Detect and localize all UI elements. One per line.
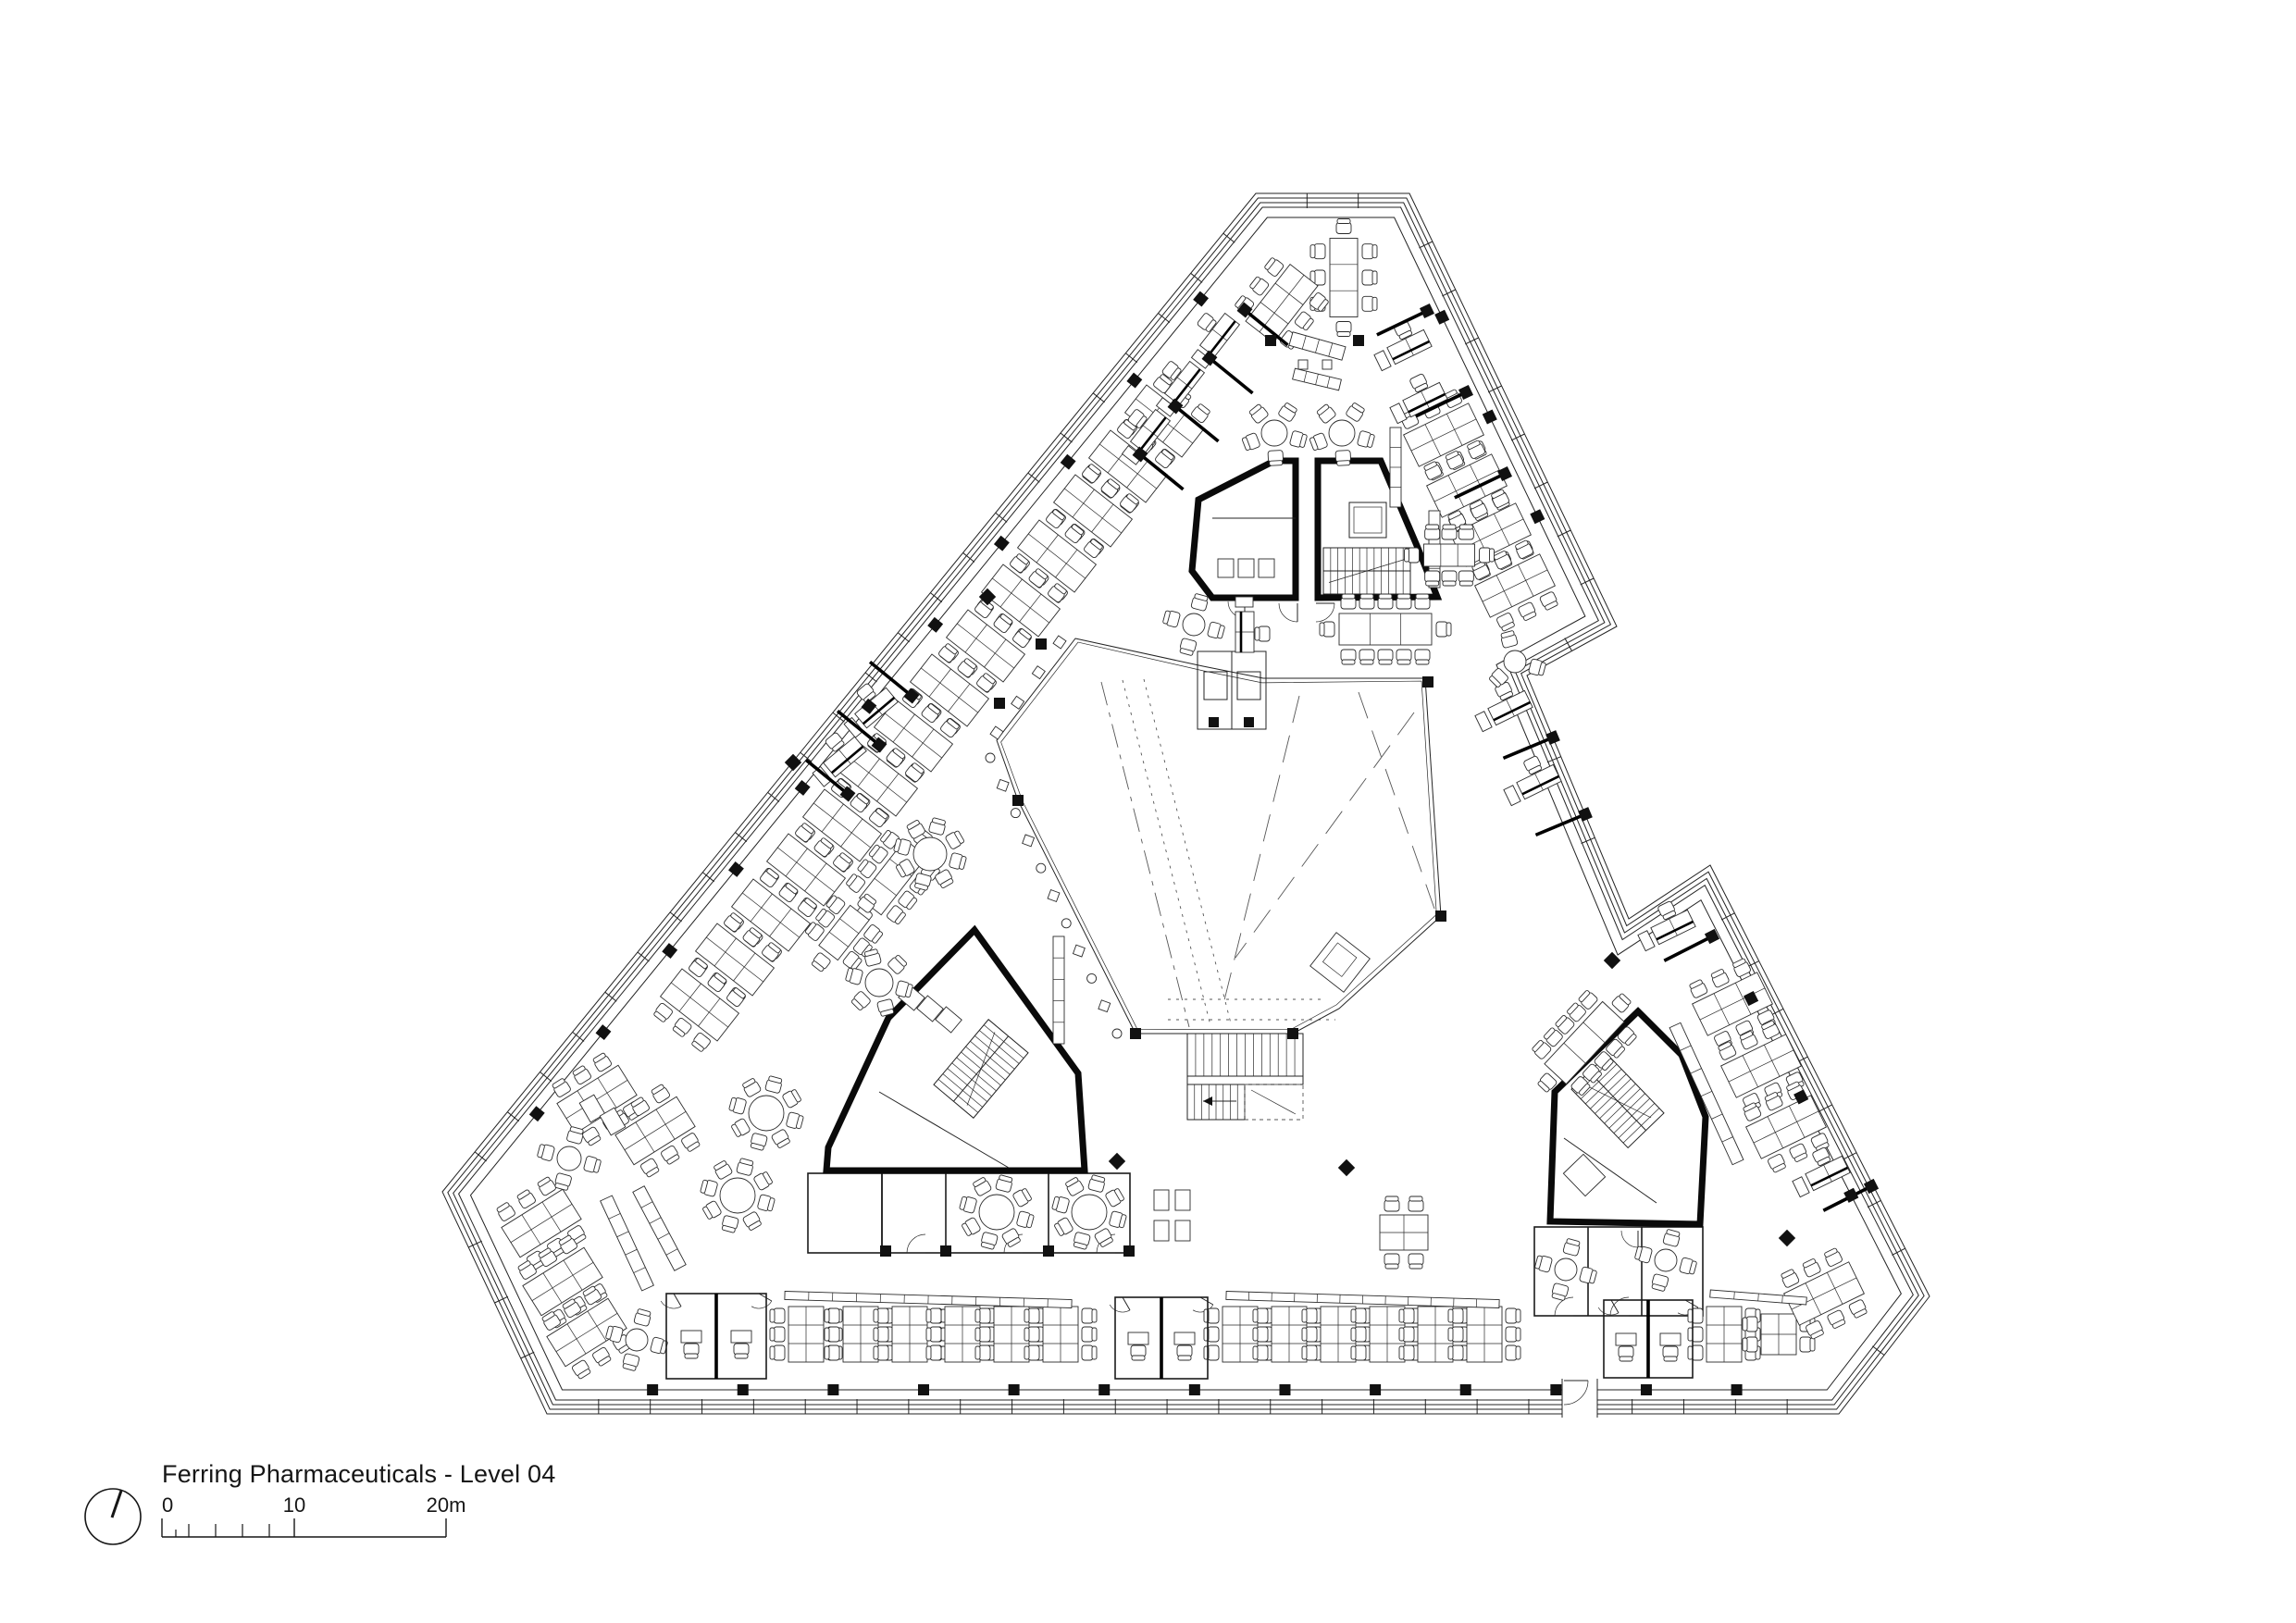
- page-title: Ferring Pharmaceuticals - Level 04: [162, 1460, 556, 1489]
- north-arrow-icon: [81, 1484, 148, 1551]
- floor-plan-drawing: [0, 0, 2296, 1623]
- scale-label-20: 20m: [427, 1493, 466, 1517]
- drawing-sheet: Ferring Pharmaceuticals - Level 04 0 10 …: [0, 0, 2296, 1623]
- scale-label-0: 0: [162, 1493, 173, 1517]
- atrium-skylight-lines: [1101, 679, 1434, 1027]
- scale-bar: 0 10 20m: [157, 1495, 472, 1551]
- scale-label-10: 10: [283, 1493, 305, 1517]
